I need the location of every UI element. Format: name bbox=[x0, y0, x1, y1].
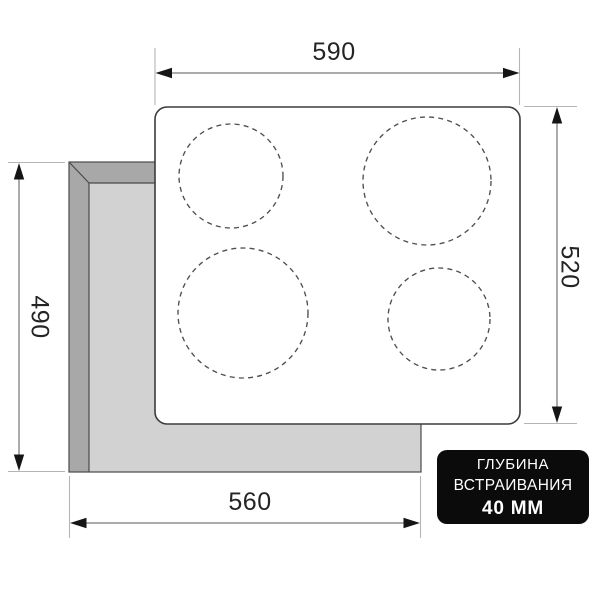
arrow-top-left-icon bbox=[156, 68, 173, 78]
dim-label-right-height: 520 bbox=[555, 245, 584, 288]
arrow-left-up-icon bbox=[14, 163, 24, 180]
cooktop-panel bbox=[155, 107, 520, 424]
dim-label-top-width: 590 bbox=[284, 38, 384, 67]
badge-line-1: ГЛУБИНА bbox=[477, 454, 549, 475]
arrow-right-up-icon bbox=[552, 107, 562, 124]
arrow-bottom-left-icon bbox=[70, 518, 87, 528]
mounting-depth-badge: ГЛУБИНА ВСТРАИВАНИЯ 40 ММ bbox=[437, 450, 589, 524]
arrow-top-right-icon bbox=[503, 68, 520, 78]
arrow-bottom-right-icon bbox=[404, 518, 421, 528]
badge-line-3: 40 ММ bbox=[482, 497, 544, 520]
cutout-bevel-left bbox=[69, 162, 89, 472]
cooktop bbox=[155, 107, 520, 424]
dim-label-left-cutout-height: 490 bbox=[25, 295, 54, 338]
installation-diagram: 590 520 490 560 ГЛУБИНА ВСТРАИВАНИЯ 40 М… bbox=[0, 0, 600, 600]
arrow-right-down-icon bbox=[552, 407, 562, 424]
badge-line-2: ВСТРАИВАНИЯ bbox=[454, 475, 573, 497]
dim-label-bottom-cutout-width: 560 bbox=[200, 488, 300, 517]
arrow-left-down-icon bbox=[14, 455, 24, 472]
